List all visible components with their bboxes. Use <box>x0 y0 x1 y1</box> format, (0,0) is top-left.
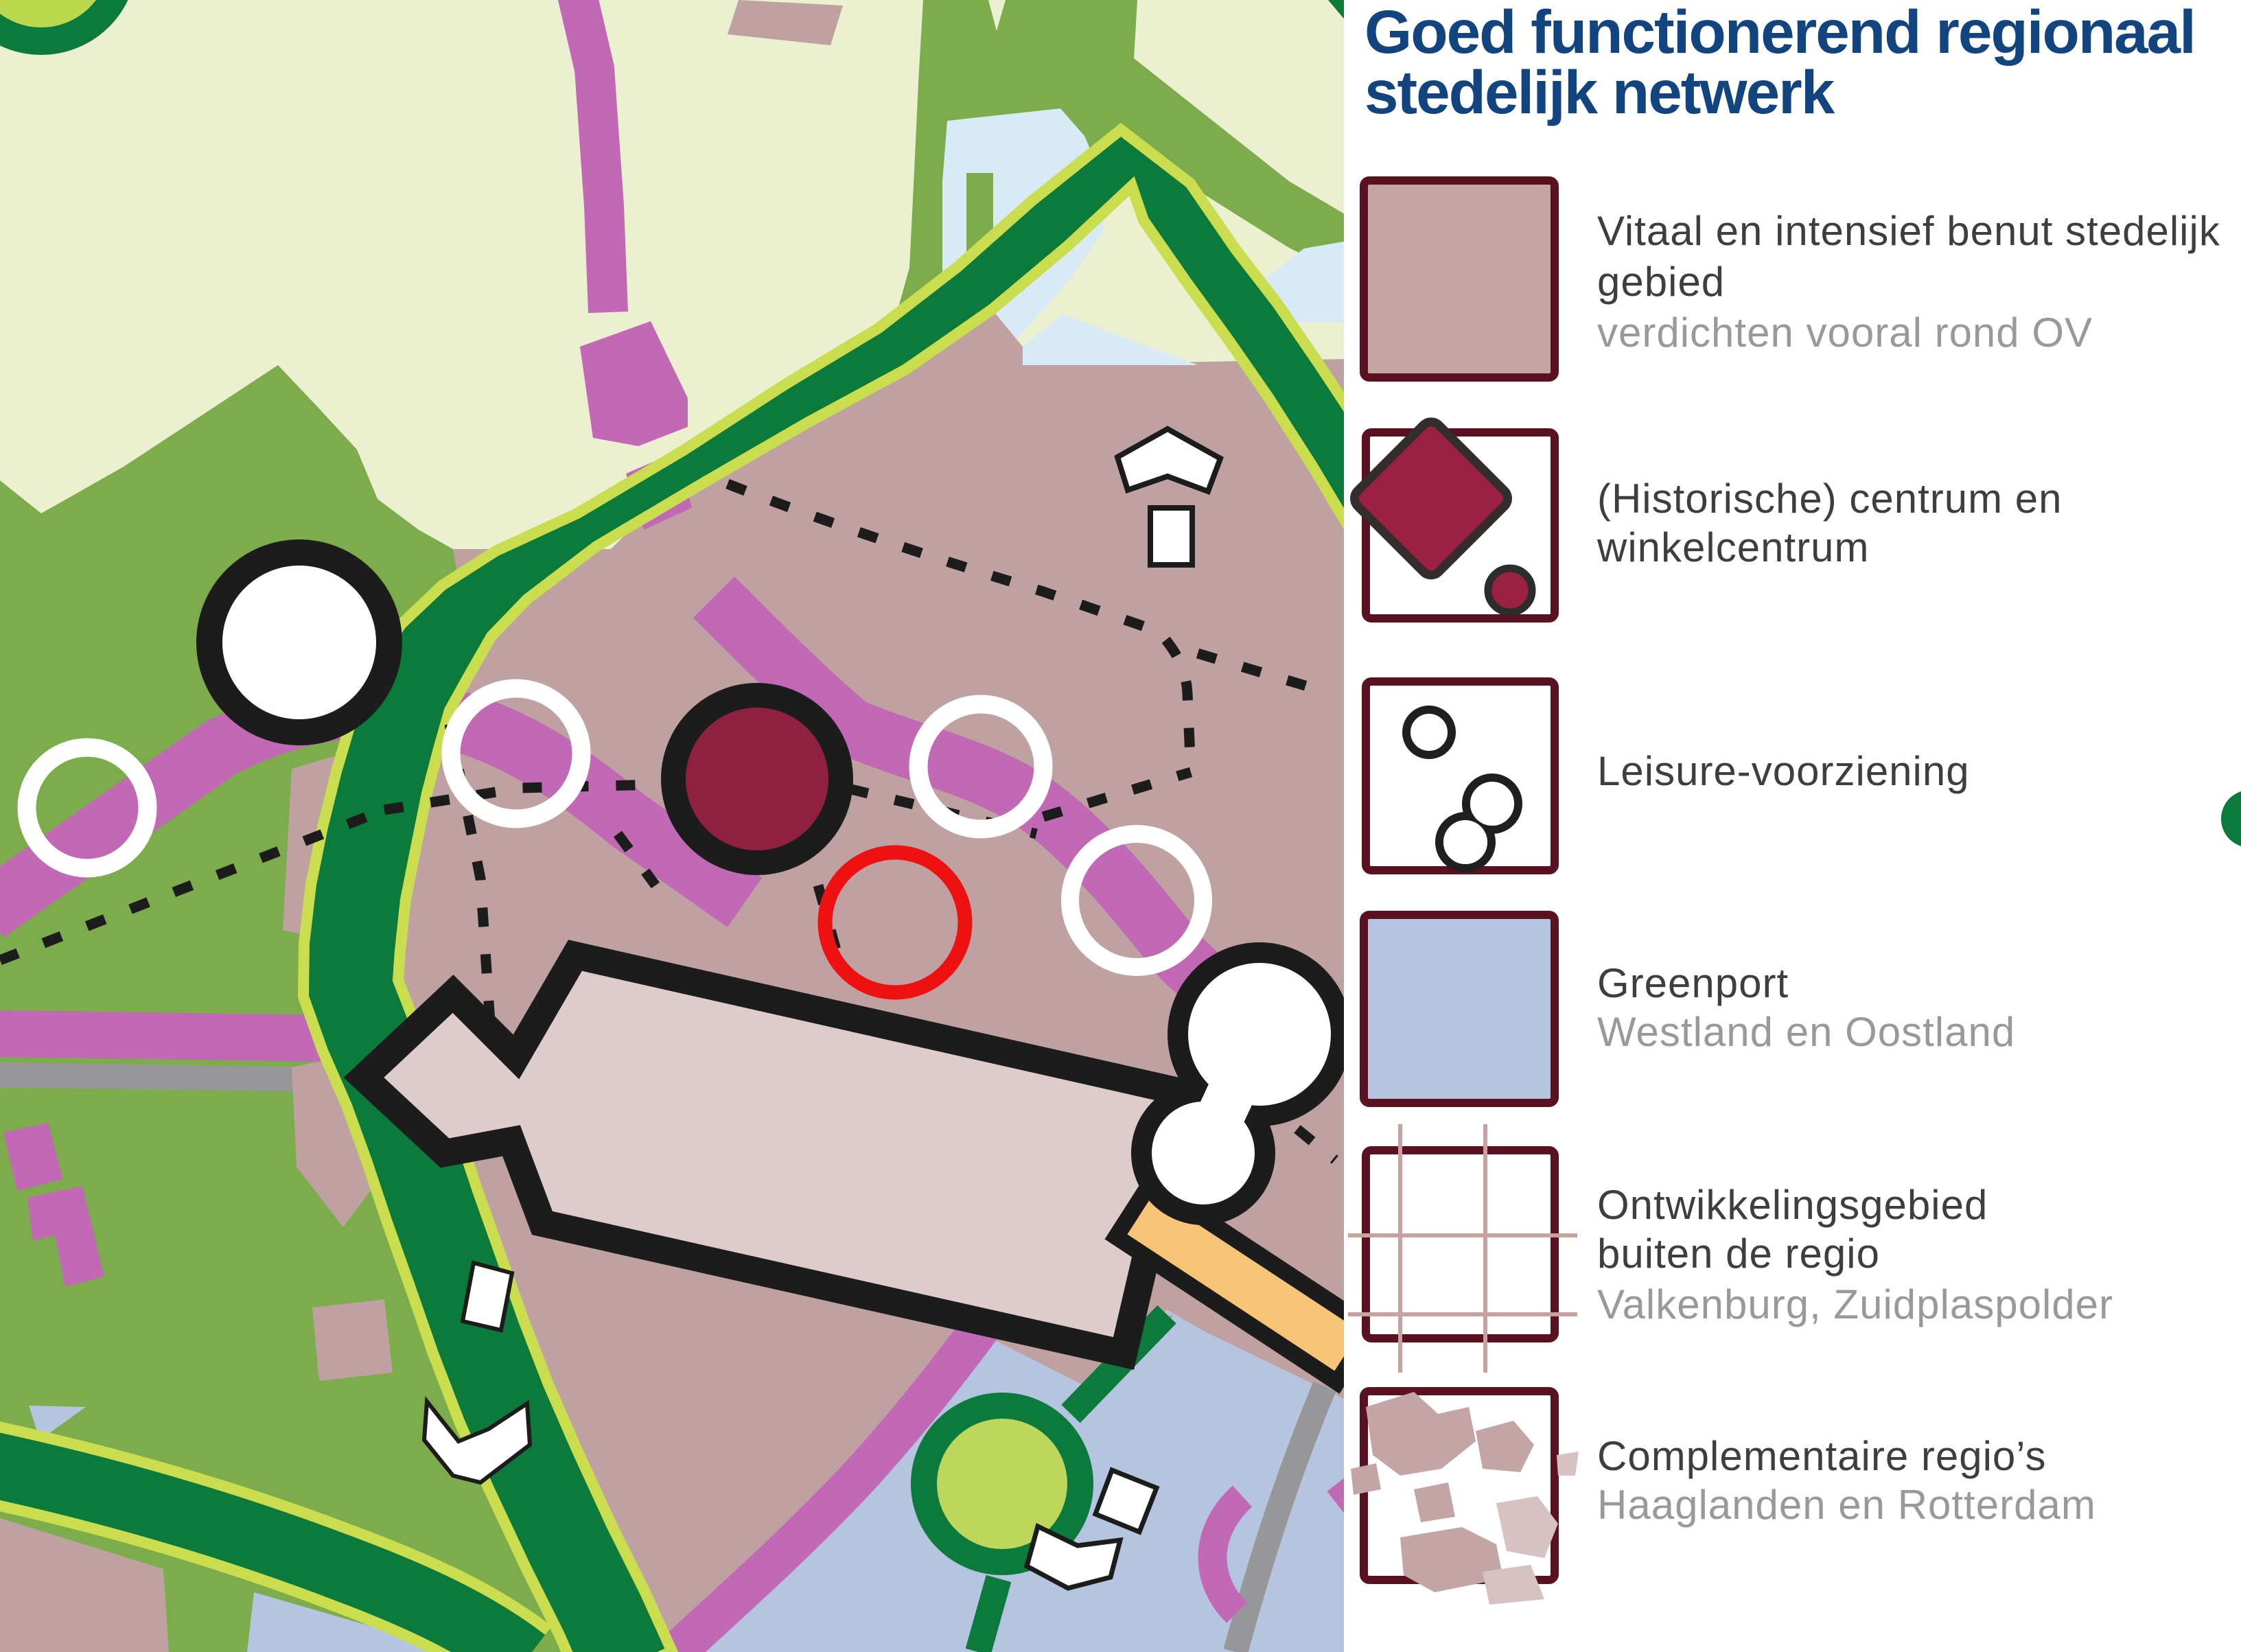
svg-text:Ontwikkelingsgebied: Ontwikkelingsgebied <box>1597 1182 1988 1228</box>
svg-text:stedelijk netwerk: stedelijk netwerk <box>1365 58 1835 126</box>
svg-text:Haaglanden en Rotterdam: Haaglanden en Rotterdam <box>1597 1482 2096 1528</box>
svg-text:Leisure-voorziening: Leisure-voorziening <box>1597 748 1970 794</box>
svg-text:Goed functionerend regionaal: Goed functionerend regionaal <box>1365 0 2195 66</box>
svg-text:Valkenburg, Zuidplaspolder: Valkenburg, Zuidplaspolder <box>1597 1281 2113 1327</box>
svg-text:verdichten vooral rond OV: verdichten vooral rond OV <box>1597 310 2093 356</box>
svg-text:gebied: gebied <box>1597 259 1725 305</box>
svg-text:Greenport: Greenport <box>1597 960 1789 1006</box>
svg-text:Westland en Oostland: Westland en Oostland <box>1597 1009 2015 1055</box>
svg-text:Vitaal en intensief benut sted: Vitaal en intensief benut stedelijk <box>1597 208 2220 254</box>
svg-text:winkelcentrum: winkelcentrum <box>1596 524 1869 570</box>
svg-text:(Historische) centrum en: (Historische) centrum en <box>1597 476 2063 522</box>
svg-text:buiten de regio: buiten de regio <box>1597 1231 1880 1277</box>
svg-text:Complementaire regio’s: Complementaire regio’s <box>1597 1433 2047 1479</box>
